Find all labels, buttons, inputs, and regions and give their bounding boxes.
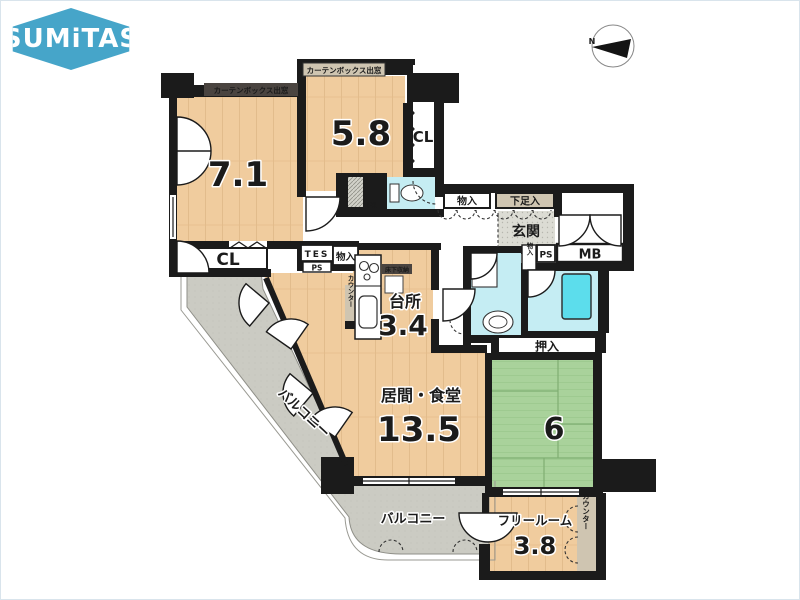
floorplan-page: SUMiTAS (0, 0, 800, 600)
compass: N (589, 25, 634, 67)
kitchen-size: 3.4 (378, 309, 428, 342)
tatami-size: 6 (544, 412, 565, 447)
entry-door-left (559, 215, 590, 246)
monoire-small-label: 物入 (525, 241, 534, 256)
kitchen-unit (355, 255, 381, 339)
meter-box-label: MB (579, 248, 602, 263)
living-size: 13.5 (377, 410, 461, 450)
toilet-shelf (348, 177, 363, 207)
bedroom2-door (306, 197, 340, 231)
ps-label-entry: PS (539, 251, 552, 261)
toilet-fixture (390, 184, 423, 202)
underfloor-storage-door (385, 276, 403, 293)
bedroom1-size: 7.1 (208, 155, 268, 195)
underfloor-storage-label: 床下収納 (385, 266, 409, 274)
shoe-box-label: 下足入 (510, 196, 540, 208)
washbasin (483, 311, 513, 333)
free-room-label: フリールーム (498, 513, 573, 528)
curtain-box-label-1: カーテンボックス出窓 (214, 85, 289, 95)
entry-door-right (590, 215, 621, 246)
compass-north-label: N (589, 37, 596, 46)
floorplan-svg: N カーテンボックス出窓 カーテンボックス出窓 7.1 5.8 CL CL TE… (1, 1, 800, 600)
closet-lower-label: CL (216, 250, 239, 270)
curtain-box-label-2: カーテンボックス出窓 (307, 65, 382, 75)
monoire-left-label: 物入 (336, 251, 356, 263)
bedroom2-size: 5.8 (331, 114, 391, 154)
living-label: 居間・食堂 (381, 386, 461, 405)
kitchen-sink (359, 296, 377, 328)
free-room-size: 3.8 (514, 532, 557, 560)
hall-door-dashed (450, 320, 464, 334)
closet-upper-label: CL (413, 128, 434, 146)
kitchen-counter-label: カウンター (346, 274, 354, 307)
balcony-bottom-label: バルコニー (381, 512, 446, 527)
ps-label-toilet: PS (367, 201, 378, 210)
entrance-label: 玄関 (512, 223, 540, 240)
bathtub (562, 274, 591, 319)
tes-label: TES (305, 250, 330, 260)
free-room-counter-label: カウンター (581, 492, 590, 530)
ps-label-tes: PS (312, 264, 323, 273)
oshiire-label: 押入 (535, 339, 559, 354)
monoire-hall-label: 物入 (457, 195, 477, 208)
